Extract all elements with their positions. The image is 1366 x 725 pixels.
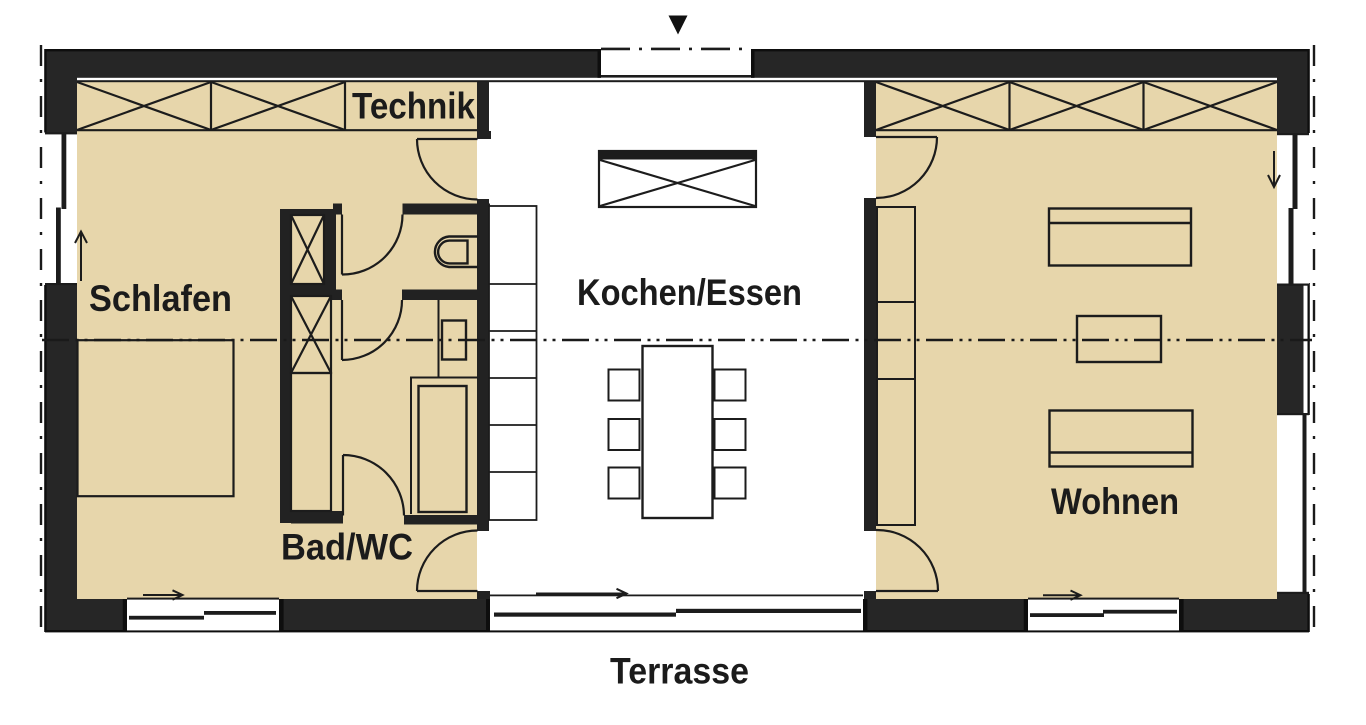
svg-text:Technik: Technik: [352, 85, 475, 127]
svg-text:Bad/WC: Bad/WC: [281, 526, 413, 568]
svg-text:Wohnen: Wohnen: [1051, 480, 1179, 522]
svg-text:Kochen/Essen: Kochen/Essen: [577, 271, 802, 313]
svg-text:Schlafen: Schlafen: [89, 277, 232, 319]
svg-text:Terrasse: Terrasse: [610, 650, 749, 692]
